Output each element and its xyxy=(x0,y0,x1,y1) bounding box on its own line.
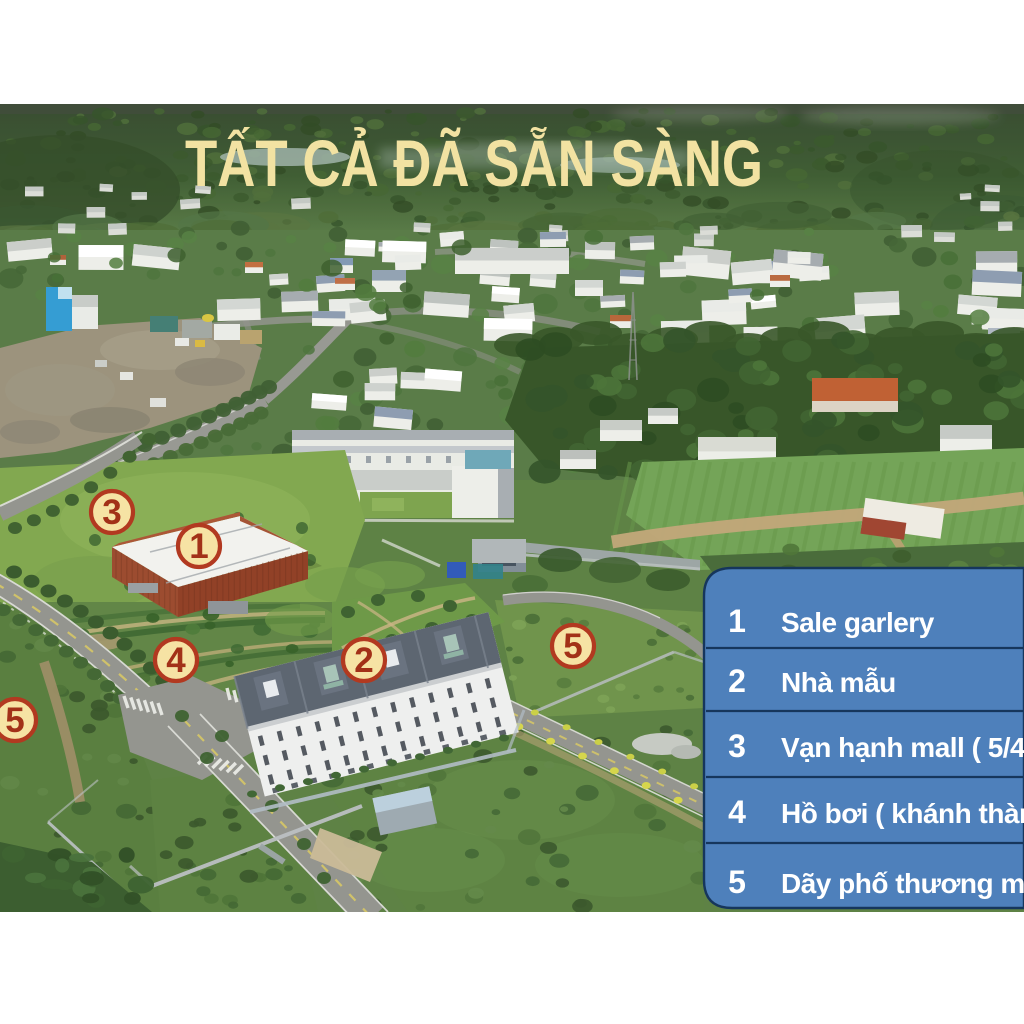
svg-text:Dãy phố thương mại: Dãy phố thương mại xyxy=(781,868,1024,899)
svg-text:Nhà mẫu: Nhà mẫu xyxy=(781,667,896,698)
svg-text:4: 4 xyxy=(728,794,746,830)
svg-text:2: 2 xyxy=(728,663,746,699)
svg-text:3: 3 xyxy=(728,728,746,764)
svg-text:2: 2 xyxy=(354,641,373,680)
svg-text:4: 4 xyxy=(166,641,186,680)
svg-text:1: 1 xyxy=(728,603,746,639)
svg-text:3: 3 xyxy=(102,493,121,532)
svg-text:5: 5 xyxy=(728,864,746,900)
svg-text:TẤT CẢ ĐÃ SẴN SÀNG: TẤT CẢ ĐÃ SẴN SÀNG xyxy=(185,126,763,200)
svg-text:1: 1 xyxy=(189,527,208,566)
svg-text:5: 5 xyxy=(5,701,24,740)
svg-text:5: 5 xyxy=(563,627,582,666)
svg-text:Vạn hạnh mall ( 5/4/2022 ): Vạn hạnh mall ( 5/4/2022 ) xyxy=(781,732,1024,763)
svg-text:Sale garlery: Sale garlery xyxy=(781,607,935,638)
svg-text:Hồ bơi ( khánh thành ngà: Hồ bơi ( khánh thành ngà xyxy=(781,798,1024,829)
